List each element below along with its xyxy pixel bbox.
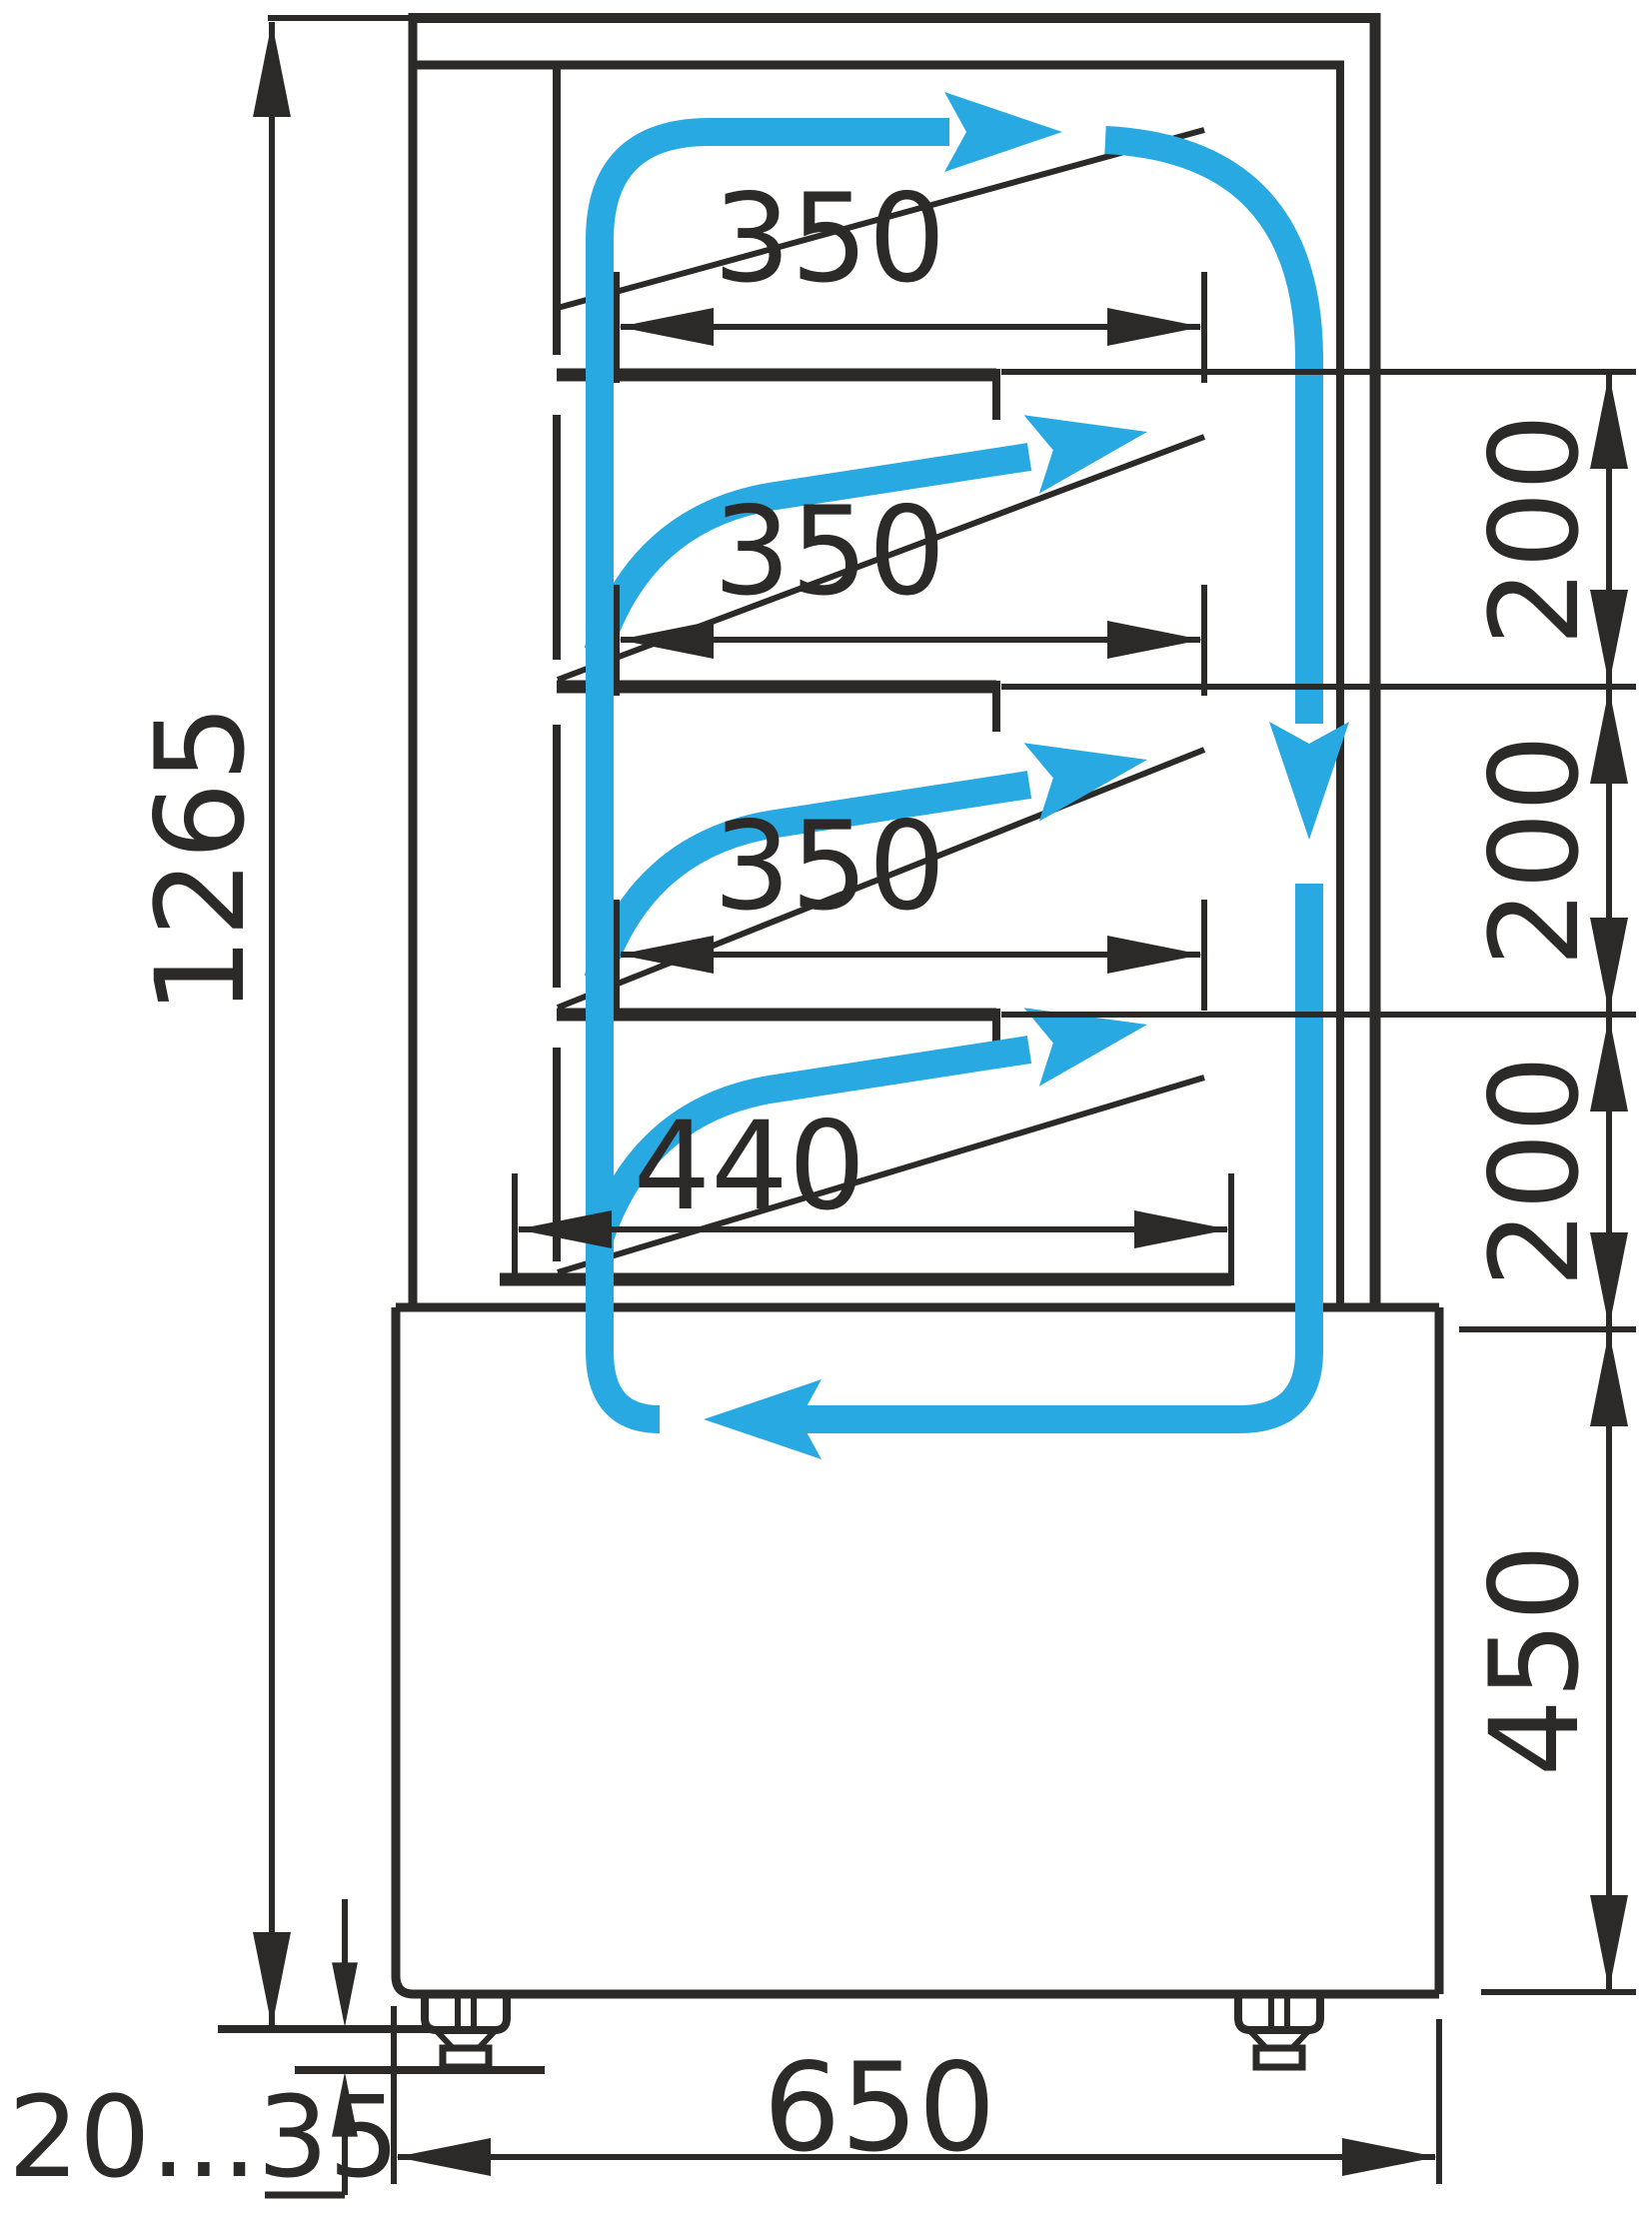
left-foot-mount [425,1995,507,2030]
arrow-450-bottom [1590,1895,1628,1990]
right-foot-plate [1256,2048,1302,2067]
right-foot-mount [1238,1995,1320,2030]
label-200-1: 200 [1464,414,1606,647]
label-350-2: 350 [714,481,946,623]
arrow-350-3-left [619,936,714,974]
arrow-350-3-right [1107,936,1202,974]
arrow-350-1-left [619,308,714,346]
left-foot-plate [443,2048,489,2067]
flow-arrow-branch-4 [1024,986,1155,1087]
arrow-440-left [517,1210,612,1248]
display-case-diagram: 350350350440126520020020045065020...35 [0,0,1652,2214]
label-440: 440 [634,1096,866,1237]
label-450: 450 [1464,1544,1606,1777]
arrow-650-left [396,2138,491,2176]
arrow-650-right [1342,2138,1437,2176]
drawing-stage: 350350350440126520020020045065020...35 [0,0,1652,2214]
arrow-1265-bottom [253,1932,291,2027]
flow-front-descent-lower [794,884,1309,1419]
label-350-1: 350 [714,168,946,310]
arrow-350-2-right [1107,621,1202,659]
label-2035: 20...35 [8,2073,400,2203]
arrow-1265-top [253,22,291,117]
label-1265: 1265 [130,705,272,1015]
arrow-2035-down [332,1962,358,2027]
label-200-3: 200 [1464,1056,1606,1288]
arrow-440-right [1134,1210,1229,1248]
arrow-450-top [1590,1331,1628,1426]
flow-arrow-branch-3 [1024,721,1155,822]
label-200-2: 200 [1464,735,1606,968]
arrow-350-1-right [1107,308,1202,346]
label-650: 650 [764,2037,996,2179]
flow-arrow-top-right [944,92,1062,172]
label-350-3: 350 [714,796,946,938]
